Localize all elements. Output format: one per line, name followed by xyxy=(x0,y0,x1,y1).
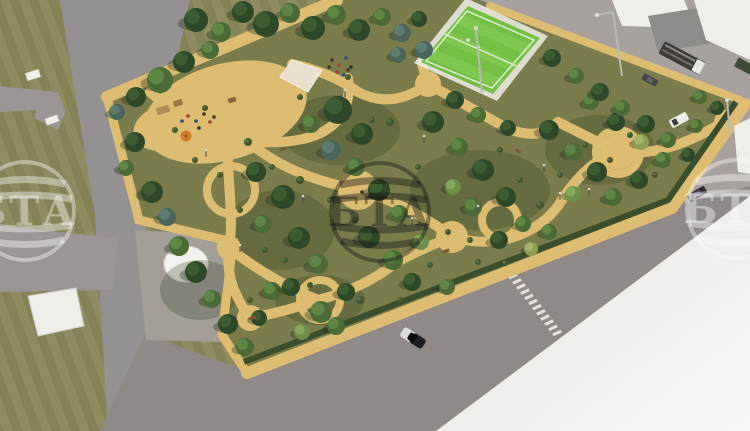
watermark-center-text: БТА xyxy=(327,189,433,236)
scene-svg: БТА БТА БТА xyxy=(0,0,750,431)
watermark-center: БТА xyxy=(327,163,433,261)
watermark-left-text: БТА xyxy=(0,188,78,235)
park-render-image: БТА БТА БТА xyxy=(0,0,750,431)
watermark-right-text: БТА xyxy=(683,186,750,233)
